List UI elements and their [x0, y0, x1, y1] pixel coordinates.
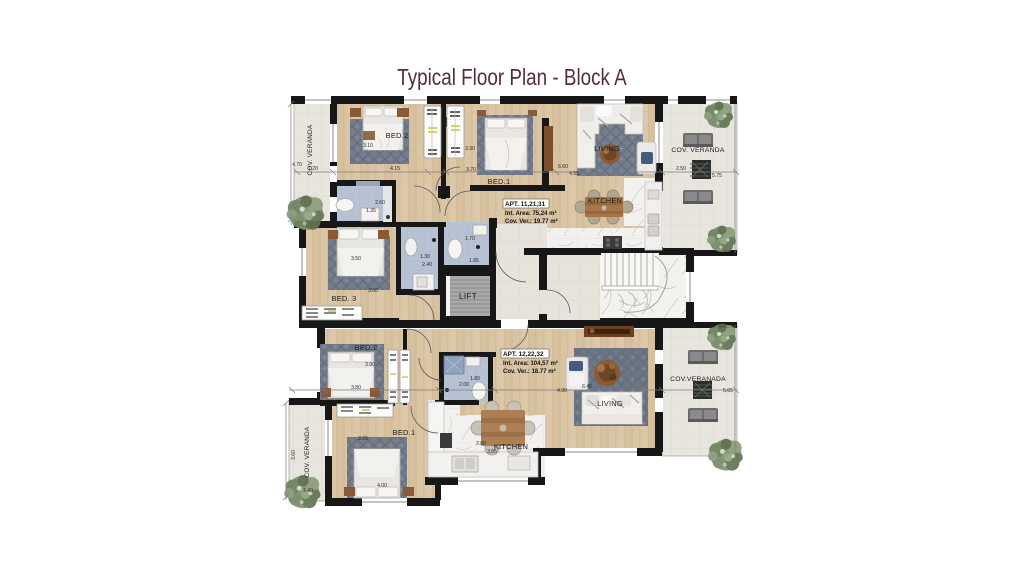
svg-text:3.90: 3.90	[365, 362, 375, 368]
svg-text:1.85: 1.85	[469, 258, 479, 264]
svg-text:COV.VERANADA: COV.VERANADA	[670, 376, 726, 383]
svg-text:COV. VERANDA: COV. VERANDA	[671, 147, 724, 154]
svg-text:3.85: 3.85	[487, 449, 497, 455]
svg-text:4.15: 4.15	[390, 166, 400, 172]
svg-text:Cov. Ver.: 19.77 m²: Cov. Ver.: 19.77 m²	[505, 218, 558, 225]
svg-text:4.90: 4.90	[557, 388, 567, 394]
svg-text:4.70: 4.70	[292, 162, 302, 168]
svg-text:BED.1: BED.1	[488, 177, 511, 186]
svg-text:6.60: 6.60	[558, 164, 568, 170]
svg-text:COV. VERANDA: COV. VERANDA	[304, 426, 311, 477]
svg-text:3.60: 3.60	[291, 450, 297, 460]
svg-text:2.60: 2.60	[375, 200, 385, 206]
svg-text:3.50: 3.50	[351, 256, 361, 262]
svg-text:BED.2: BED.2	[386, 131, 409, 140]
svg-text:KITCHEN: KITCHEN	[494, 442, 528, 451]
svg-text:3.70: 3.70	[466, 167, 476, 173]
svg-text:1.70: 1.70	[465, 236, 475, 242]
svg-text:5.65: 5.65	[723, 388, 733, 394]
svg-text:LIVING: LIVING	[594, 144, 620, 153]
svg-text:BED. 3: BED. 3	[332, 294, 357, 303]
svg-text:3.10: 3.10	[363, 143, 373, 149]
svg-text:1.30: 1.30	[420, 254, 430, 260]
svg-text:Int. Area: 75,24 m²: Int. Area: 75,24 m²	[505, 210, 556, 217]
svg-text:APT. 11,21,31: APT. 11,21,31	[505, 201, 546, 208]
svg-text:2.80: 2.80	[476, 441, 486, 447]
svg-text:Cov. Ver.: 18.77 m²: Cov. Ver.: 18.77 m²	[503, 368, 556, 375]
svg-text:3.30: 3.30	[465, 146, 475, 152]
svg-text:LIFT: LIFT	[459, 292, 477, 301]
svg-text:APT. 12,22,32: APT. 12,22,32	[503, 351, 544, 358]
svg-text:3.80: 3.80	[351, 385, 361, 391]
svg-text:BED.1: BED.1	[393, 428, 416, 437]
svg-text:LIVING: LIVING	[597, 399, 623, 408]
svg-text:4.00: 4.00	[377, 483, 387, 489]
svg-text:3.65: 3.65	[358, 436, 368, 442]
svg-text:2.50: 2.50	[676, 166, 686, 172]
svg-text:BED.2: BED.2	[355, 343, 378, 352]
svg-text:3.60: 3.60	[368, 288, 378, 294]
svg-text:1.20: 1.20	[308, 166, 318, 172]
svg-text:4.55: 4.55	[569, 171, 579, 177]
svg-text:6.40: 6.40	[582, 384, 592, 390]
svg-text:KITCHEN: KITCHEN	[588, 196, 622, 205]
svg-text:1.80: 1.80	[470, 376, 480, 382]
svg-text:Int. Area: 104,57 m²: Int. Area: 104,57 m²	[503, 360, 558, 367]
svg-text:1.35: 1.35	[366, 208, 376, 214]
svg-text:2.00: 2.00	[459, 382, 469, 388]
svg-text:5.75: 5.75	[712, 173, 722, 179]
svg-text:1.40: 1.40	[303, 488, 313, 494]
svg-text:2.40: 2.40	[422, 262, 432, 268]
